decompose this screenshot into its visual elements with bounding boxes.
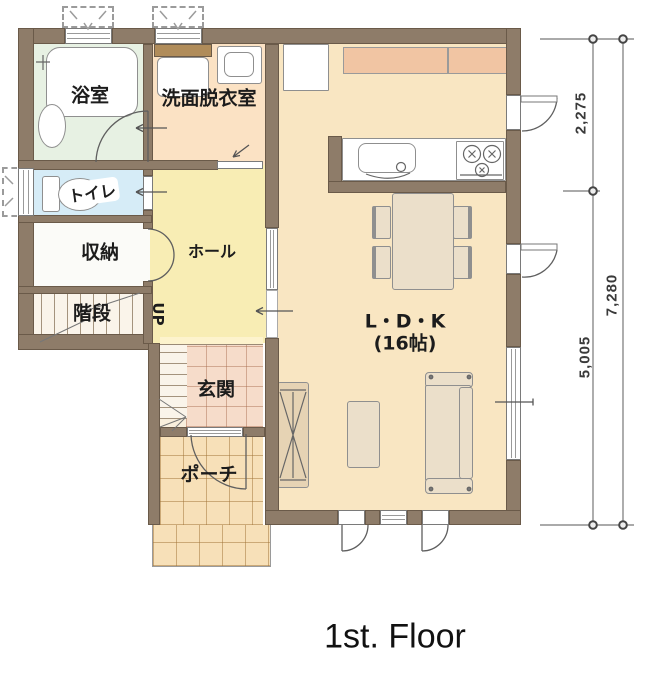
label-stairs: 階段: [73, 299, 111, 326]
wall-right: [506, 28, 521, 95]
label-bath: 浴室: [71, 81, 109, 108]
floor-plan: 浴室 洗面脱衣室 トイレ 収納 階段 ホール 玄関 ポーチ L・D・K (16帖…: [0, 0, 671, 675]
wall-bath-bottom: [18, 160, 218, 170]
island-front: [328, 181, 506, 193]
wall-stairs-bottom: [18, 334, 152, 350]
awning-dashed-outline: [62, 6, 114, 28]
label-entrance: 玄関: [197, 375, 235, 402]
cross-leg-table: [277, 382, 309, 488]
dining-table: [392, 193, 454, 290]
wall-storage-stairs: [18, 286, 152, 294]
terrace-door-right: [422, 510, 449, 525]
wall-bottom-post: [365, 510, 380, 525]
terrace-window-center: [380, 510, 407, 525]
wall-left: [18, 216, 34, 350]
wall-bottom: [265, 510, 338, 525]
label-porch: ポーチ: [180, 460, 237, 487]
refrigerator: [283, 44, 329, 91]
wall-left: [18, 28, 34, 168]
hall-ldk-opening: [266, 290, 278, 338]
porch-outside-steps: [152, 525, 271, 567]
label-washroom: 洗面脱衣室: [161, 84, 256, 111]
awning-dashed-outline: [152, 6, 204, 28]
wall-bottom: [449, 510, 521, 525]
sofa-armrest: [425, 478, 473, 494]
toilet-sliding-door: [143, 176, 153, 210]
wall-top: [112, 28, 155, 44]
wall-entrance-left: [148, 343, 160, 525]
dining-chair: [453, 206, 472, 239]
wall-hall-ldk: [265, 44, 279, 228]
toilet-window: [18, 168, 34, 216]
dim-upper-right: 2,275: [573, 92, 590, 135]
terrace-door-left: [338, 510, 365, 525]
wall-hall-ldk: [265, 338, 279, 518]
kitchen-counter: [343, 47, 510, 74]
label-ldk-size: (16帖): [374, 329, 437, 356]
tv-board: [347, 401, 380, 468]
dim-total-right: 7,280: [604, 274, 621, 317]
dining-chair: [372, 246, 391, 279]
hall-ldk-sliding-panel: [266, 228, 278, 290]
wall-right: [506, 274, 521, 347]
ldk-side-door-opening: [506, 244, 521, 274]
label-storage: 収納: [81, 238, 119, 265]
wall-entrance-door-side: [243, 427, 265, 437]
bath-window: [65, 28, 112, 44]
wall-top: [202, 28, 519, 44]
wall-toilet-storage: [18, 215, 152, 223]
wall-bottom-post: [407, 510, 422, 525]
entrance-door-panel: [187, 427, 243, 437]
page-title: 1st. Floor: [324, 618, 466, 657]
dim-lower-right: 5,005: [577, 336, 594, 379]
washroom-sink-basin: [224, 52, 254, 77]
island-sink-basin: [358, 143, 416, 173]
wall-entrance-door-side: [160, 427, 187, 437]
wall-bath-divider: [143, 44, 153, 176]
laundry-shelf: [154, 44, 212, 57]
hall-step-edge: [160, 337, 263, 345]
ldk-window-right: [506, 347, 521, 460]
washroom-window: [155, 28, 202, 44]
stove: [456, 141, 504, 180]
kitchen-backdoor-opening: [506, 95, 521, 130]
kitchen-counter-divider: [447, 48, 449, 73]
dining-chair: [453, 246, 472, 279]
wall-right: [506, 130, 521, 244]
bath-stool: [38, 104, 66, 148]
sofa-back: [459, 387, 473, 479]
dining-chair: [372, 206, 391, 239]
label-hall: ホール: [188, 238, 236, 262]
label-stairs-up: UP: [149, 302, 167, 325]
stairs-lower-run: [160, 345, 187, 419]
washroom-sliding-door: [217, 161, 263, 169]
awning-dashed-outline: [2, 167, 17, 217]
